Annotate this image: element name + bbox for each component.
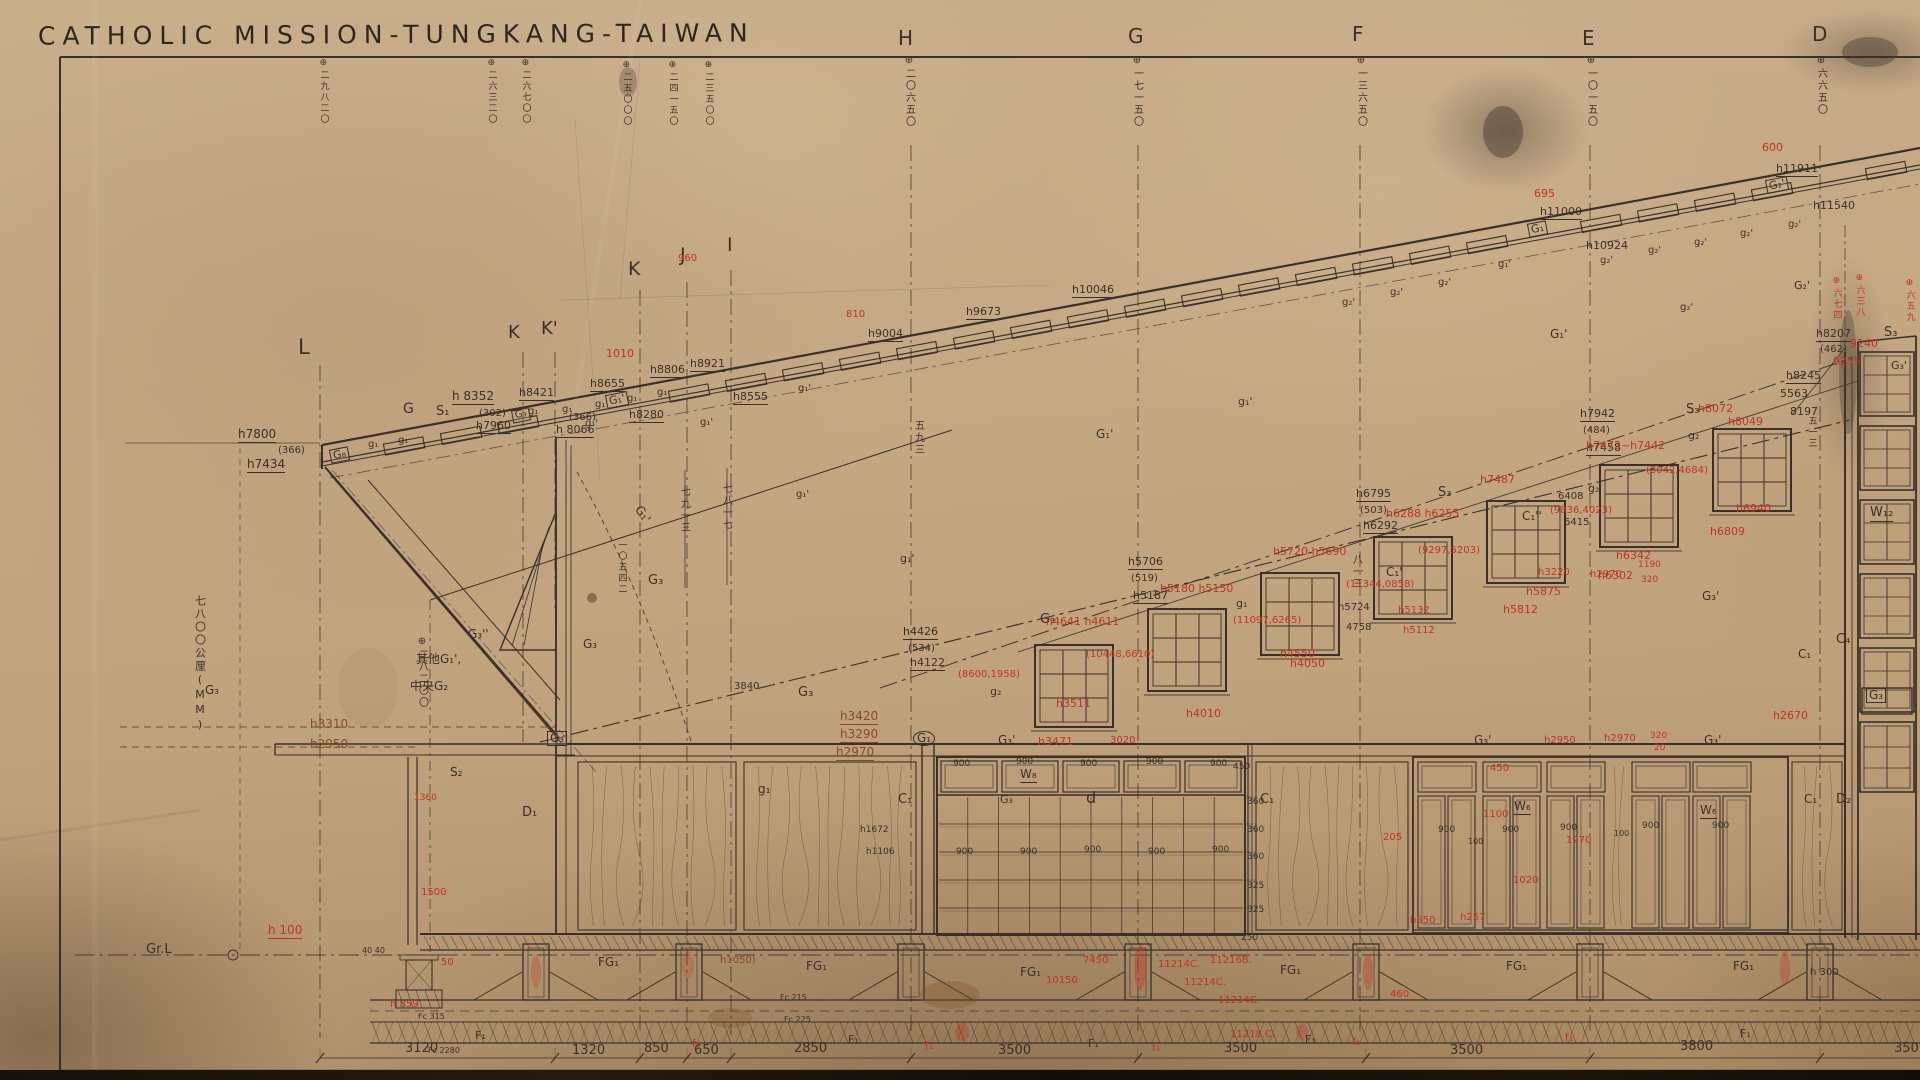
annotation-label: 9240 <box>1850 338 1878 350</box>
line-shape <box>1369 936 1376 949</box>
line-shape <box>627 972 675 1000</box>
annotation-label: FG₁ <box>1733 960 1754 973</box>
line-shape <box>1360 936 1367 949</box>
annotation-label: G₃' <box>1702 590 1719 603</box>
annotation-label: h3420 <box>840 710 878 725</box>
line-shape <box>973 936 980 949</box>
line-shape <box>322 169 1920 466</box>
annotation-label: 11214C. <box>1218 996 1260 1007</box>
line-shape <box>898 766 902 926</box>
line-shape <box>887 766 891 926</box>
annotation-label: G₃ <box>583 638 597 651</box>
line-shape <box>782 363 823 381</box>
annotation-label: G₃ <box>1866 688 1886 703</box>
line-shape <box>531 956 541 988</box>
annotation-label: 320 <box>1650 732 1667 741</box>
line-shape <box>1567 936 1574 949</box>
annotation-label: h5724 <box>1338 603 1370 614</box>
line-shape <box>524 543 543 645</box>
line-shape <box>849 972 897 1000</box>
annotation-label: 900 <box>1438 826 1455 835</box>
line-shape <box>1702 936 1709 949</box>
line-shape <box>782 766 790 926</box>
line-shape <box>1365 766 1368 926</box>
line-shape <box>433 936 440 949</box>
annotation-label: g₂' <box>1600 256 1613 267</box>
annotation-label: 4758 <box>1346 623 1371 634</box>
annotation-label: g₁ <box>657 388 667 399</box>
line-shape <box>953 331 994 349</box>
annotation-label: h8921 <box>690 358 725 372</box>
annotation-label: h 100 <box>268 924 302 939</box>
line-shape <box>919 936 926 949</box>
line-shape <box>514 936 521 949</box>
line-shape <box>1747 936 1754 949</box>
line-shape <box>442 936 449 949</box>
line-shape <box>676 936 683 949</box>
line-shape <box>1108 936 1115 949</box>
line-shape <box>1018 936 1025 949</box>
line-shape <box>1780 950 1790 986</box>
annotation-label: 205 <box>1383 833 1402 844</box>
line-shape <box>1792 762 1842 930</box>
line-shape <box>1802 766 1805 926</box>
line-shape <box>1261 936 1268 949</box>
line-shape <box>1128 765 1176 788</box>
line-shape <box>587 593 597 603</box>
annotation-label: g₂' <box>1694 238 1707 249</box>
annotation-label: ⊕二五〇〇〇 <box>621 60 630 127</box>
annotation-label: (534) <box>908 644 935 655</box>
line-shape <box>694 936 701 949</box>
annotation-label: G₁' <box>1096 428 1113 441</box>
line-shape <box>1666 936 1673 949</box>
line-shape <box>1090 936 1097 949</box>
annotation-label: h 859 <box>390 1000 419 1011</box>
line-shape <box>451 936 458 949</box>
annotation-label: ⊕一〇一五〇 <box>1585 55 1596 128</box>
annotation-label: C₁' <box>1386 566 1403 579</box>
line-shape <box>820 936 827 949</box>
line-shape <box>828 766 830 926</box>
line-shape <box>829 936 836 949</box>
line-shape <box>1909 936 1916 949</box>
annotation-label: 900 <box>1502 826 1519 835</box>
line-shape <box>793 936 800 949</box>
annotation-label: h257 <box>1460 913 1485 924</box>
line-shape <box>1297 936 1304 949</box>
annotation-label: h6288 h6255 <box>1386 508 1459 520</box>
line-shape <box>1325 766 1329 926</box>
annotation-label: 其他G₁', <box>416 653 461 666</box>
line-shape <box>1648 936 1655 949</box>
line-shape <box>1693 936 1700 949</box>
line-shape <box>1148 609 1226 691</box>
line-shape <box>1270 936 1277 949</box>
line-shape <box>1528 972 1576 1000</box>
line-shape <box>1081 936 1088 949</box>
annotation-label: 900 <box>1016 758 1033 767</box>
annotation-label: 一〇五四二 <box>616 540 625 595</box>
annotation-label: ⊕二九八二〇 <box>318 58 327 125</box>
annotation-label: 8197 <box>1790 406 1818 418</box>
line-shape <box>1040 650 1108 722</box>
line-shape <box>1468 936 1475 949</box>
annotation-label: h6795 <box>1356 488 1391 502</box>
table-edge-shadow <box>0 1070 1920 1080</box>
annotation-label: h7960 <box>476 420 511 434</box>
line-shape <box>505 936 512 949</box>
line-shape <box>839 352 880 370</box>
annotation-label: G₃ <box>205 684 219 697</box>
line-shape <box>1513 936 1520 949</box>
line-shape <box>1842 37 1898 67</box>
line-shape <box>1873 936 1880 949</box>
annotation-label: h3471 <box>1038 736 1073 748</box>
annotation-label: g₁ <box>595 400 605 411</box>
annotation-label: C₄ <box>1836 633 1850 647</box>
annotation-label: h7434 <box>247 458 285 473</box>
line-shape <box>633 766 644 926</box>
line-shape <box>1134 946 1146 990</box>
annotation-label: g₁ <box>1236 598 1247 610</box>
line-shape <box>590 766 593 926</box>
annotation-label: FG₁ <box>1020 966 1041 979</box>
annotation-label: G <box>1128 26 1144 47</box>
line-shape <box>616 766 624 926</box>
line-shape <box>460 936 467 949</box>
line-shape <box>871 766 881 926</box>
annotation-label: 460 <box>1390 990 1409 1001</box>
annotation-label: ⊕二八二〇〇 <box>416 636 427 709</box>
line-shape <box>1352 257 1393 275</box>
line-shape <box>1441 936 1448 949</box>
annotation-label: h8280 <box>629 409 664 423</box>
line-shape <box>559 936 566 949</box>
annotation-label: 6408 <box>1558 492 1583 503</box>
annotation-label: G₃ <box>547 731 567 746</box>
annotation-label: H <box>898 28 913 49</box>
annotation-label: 1020 <box>1513 876 1538 887</box>
line-shape <box>368 480 560 700</box>
annotation-label: G₃' <box>1474 734 1491 747</box>
line-shape <box>1522 936 1529 949</box>
annotation-label: 七八〇〇公厘(MM) <box>194 595 206 733</box>
annotation-label: 810 <box>846 310 865 321</box>
line-shape <box>602 766 607 926</box>
line-shape <box>1293 766 1301 926</box>
line-shape <box>1580 214 1621 232</box>
line-shape <box>1495 936 1502 949</box>
line-shape <box>1126 936 1133 949</box>
annotation-label: 325 <box>1247 882 1264 891</box>
line-shape <box>1144 936 1151 949</box>
annotation-label: 1010 <box>606 348 634 360</box>
line-shape <box>577 936 584 949</box>
line-shape <box>523 936 530 949</box>
line-shape <box>1675 936 1682 949</box>
annotation-label: h9004 <box>868 328 903 342</box>
line-shape <box>1238 278 1279 296</box>
line-shape <box>1216 936 1223 949</box>
annotation-label: h8806 <box>650 364 685 378</box>
drawing-linework <box>0 0 1920 1080</box>
annotation-label: h7942 <box>1580 408 1615 422</box>
annotation-label: E <box>1582 28 1595 49</box>
line-shape <box>1891 936 1898 949</box>
annotation-label: 七九一三 <box>678 486 689 534</box>
annotation-label: (484) <box>1583 426 1610 437</box>
annotation-label: F₁ <box>475 1030 486 1042</box>
line-shape <box>1387 936 1394 949</box>
line-shape <box>1828 936 1835 949</box>
line-shape <box>1394 766 1398 926</box>
annotation-label: 250 <box>1241 934 1258 943</box>
annotation-label: S₃ <box>1438 486 1451 500</box>
line-shape <box>1414 936 1421 949</box>
annotation-label: 450 <box>1490 764 1509 775</box>
annotation-label: 900 <box>1084 846 1101 855</box>
annotation-label: 五一三 <box>1806 416 1815 449</box>
line-shape <box>1054 936 1061 949</box>
line-shape <box>1306 936 1313 949</box>
line-shape <box>784 936 791 949</box>
line-shape <box>1268 766 1271 926</box>
annotation-label: G <box>403 402 414 417</box>
line-shape <box>703 936 710 949</box>
line-shape <box>1585 936 1592 949</box>
annotation-label: 360 <box>1247 826 1264 835</box>
line-shape <box>672 766 679 926</box>
annotation-label: 3500 <box>1224 1042 1257 1056</box>
annotation-label: 2850 <box>794 1042 827 1056</box>
annotation-label: h2950 <box>310 738 348 751</box>
annotation-label: h4122 <box>910 657 945 671</box>
line-shape <box>1423 936 1430 949</box>
line-shape <box>1551 800 1570 924</box>
annotation-label: 900 <box>1080 760 1097 769</box>
line-shape <box>1837 936 1844 949</box>
annotation-label: 50 <box>441 958 454 969</box>
line-shape <box>1422 766 1472 788</box>
annotation-label: g₁' <box>1238 396 1252 408</box>
line-shape <box>1466 236 1507 254</box>
line-shape <box>1711 936 1718 949</box>
annotation-label: f₁ <box>925 1040 933 1052</box>
annotation-label: h8049 <box>1728 416 1763 428</box>
line-shape <box>1612 766 1615 926</box>
line-shape <box>1765 936 1772 949</box>
annotation-label: 900 <box>1146 758 1163 767</box>
annotation-label: g₂ <box>990 686 1001 698</box>
line-shape <box>650 766 654 926</box>
line-shape <box>1882 936 1889 949</box>
annotation-label: h4426 <box>903 626 938 640</box>
annotation-label: g₁ <box>368 440 378 451</box>
annotation-label: h1106 <box>866 848 895 857</box>
annotation-label: g₂' <box>1342 298 1355 309</box>
line-shape <box>1181 289 1222 307</box>
line-shape <box>721 936 728 949</box>
annotation-label: FG₁ <box>1280 964 1301 977</box>
line-shape <box>1351 936 1358 949</box>
line-shape <box>874 936 881 949</box>
line-shape <box>532 936 539 949</box>
line-shape <box>1171 936 1178 949</box>
line-shape <box>802 936 809 949</box>
annotation-label: 中央G₂ <box>410 680 448 693</box>
line-shape <box>1261 573 1339 655</box>
blueprint-sheet: CATHOLIC MISSION-TUNGKANG-TAIWAN H⊕二〇六五〇… <box>0 0 1920 1080</box>
annotation-label: ⊕六六五〇 <box>1815 55 1826 116</box>
annotation-label: g₁' <box>585 419 598 430</box>
annotation-label: g₂' <box>1390 288 1403 299</box>
line-shape <box>1099 936 1106 949</box>
annotation-label: g₁ <box>758 783 770 796</box>
annotation-label: (366) <box>278 446 305 457</box>
annotation-label: g₁ <box>398 436 408 447</box>
annotation-label: h6940 <box>1736 503 1771 515</box>
line-shape <box>1027 936 1034 949</box>
line-shape <box>1774 936 1781 949</box>
line-shape <box>1636 766 1686 788</box>
line-shape <box>856 936 863 949</box>
annotation-label: h7800 <box>238 428 276 443</box>
annotation-label: G₃ <box>648 574 663 588</box>
annotation-label: Fc 215 <box>780 994 807 1002</box>
annotation-label: h5180 h5150 <box>1160 583 1233 595</box>
line-shape <box>757 936 764 949</box>
line-shape <box>586 936 593 949</box>
annotation-label: D <box>1812 24 1827 45</box>
annotation-label: f₁ <box>1352 1036 1360 1048</box>
annotation-label: h1672 <box>860 826 889 835</box>
line-shape <box>865 936 872 949</box>
annotation-label: 900 <box>1212 846 1229 855</box>
annotation-label: Fc 315 <box>418 1013 445 1021</box>
annotation-label: h4010 <box>1186 708 1221 720</box>
annotation-label: h2670 <box>1773 710 1808 722</box>
annotation-label: ⊕二六七〇〇 <box>520 58 529 125</box>
line-shape <box>496 936 503 949</box>
annotation-label: h3290 <box>840 728 878 743</box>
line-shape <box>1632 762 1690 792</box>
line-shape <box>550 972 598 1000</box>
annotation-label: h9673 <box>966 306 1001 320</box>
line-shape <box>1396 936 1403 949</box>
line-shape <box>1153 936 1160 949</box>
annotation-label: 450 <box>1233 763 1250 772</box>
annotation-label: Fc 225 <box>784 1016 811 1024</box>
line-shape <box>1825 766 1833 926</box>
line-shape <box>1279 936 1286 949</box>
line-shape <box>1666 800 1685 924</box>
line-shape <box>1621 936 1628 949</box>
annotation-label: 900 <box>1020 848 1037 857</box>
annotation-label: (302) <box>479 409 506 420</box>
line-shape <box>920 981 980 1009</box>
annotation-label: F <box>1352 24 1364 45</box>
line-shape <box>955 1023 969 1041</box>
annotation-label: 320 <box>1641 576 1658 585</box>
line-shape <box>322 165 1920 462</box>
line-shape <box>847 936 854 949</box>
annotation-label: 1360 <box>414 794 437 803</box>
annotation-label: g₂' <box>1648 246 1661 257</box>
line-shape <box>708 1008 752 1028</box>
annotation-label: 325 <box>1247 906 1264 915</box>
line-shape <box>1558 936 1565 949</box>
annotation-label: 100 <box>1614 830 1629 838</box>
line-shape <box>1295 267 1336 285</box>
annotation-label: W₁₂ <box>1870 506 1893 522</box>
annotation-label: 6415 <box>1564 518 1589 529</box>
line-shape <box>1378 766 1388 926</box>
annotation-label: 360 <box>1247 853 1264 862</box>
line-shape <box>474 972 522 1000</box>
annotation-label: h8555 <box>733 391 768 405</box>
line-shape <box>662 766 664 926</box>
annotation-label: G₃' <box>998 734 1015 747</box>
line-shape <box>668 384 709 402</box>
annotation-label: W₆ <box>1700 804 1717 819</box>
line-shape <box>1072 936 1079 949</box>
annotation-label: 11214C. <box>1158 960 1200 971</box>
line-shape <box>1551 766 1601 788</box>
line-shape <box>946 936 953 949</box>
annotation-label: h2950 <box>1544 736 1576 747</box>
annotation-label: h7487 <box>1480 474 1515 486</box>
annotation-label: h2970 <box>1590 570 1622 581</box>
annotation-label: h5112 <box>1403 626 1435 637</box>
annotation-label: G₃ <box>798 686 813 700</box>
line-shape <box>1010 320 1051 338</box>
line-shape <box>1418 762 1476 792</box>
annotation-label: C₁ <box>1804 793 1817 806</box>
annotation-label: h5875 <box>1526 586 1561 598</box>
line-shape <box>430 430 952 600</box>
annotation-label: 11216B. <box>1210 956 1252 967</box>
annotation-label: S₂ <box>450 766 462 779</box>
line-shape <box>982 936 989 949</box>
annotation-label: S₁ <box>436 405 449 419</box>
annotation-label: D₁ <box>522 806 537 820</box>
annotation-label: h5132 <box>1398 606 1430 617</box>
line-shape <box>1504 936 1511 949</box>
line-shape <box>722 766 726 926</box>
line-shape <box>425 990 431 1008</box>
line-shape <box>838 936 845 949</box>
line-shape <box>896 342 937 360</box>
annotation-label: K <box>508 324 520 343</box>
line-shape <box>1477 936 1484 949</box>
line-shape <box>838 766 845 926</box>
line-shape <box>1531 936 1538 949</box>
line-shape <box>0 810 200 840</box>
annotation-label: 7450 <box>1083 956 1108 967</box>
line-shape <box>705 766 715 926</box>
line-shape <box>1324 936 1331 949</box>
line-shape <box>1713 429 1791 511</box>
line-shape <box>595 936 602 949</box>
line-shape <box>1603 936 1610 949</box>
annotation-label: g₂' <box>1680 303 1693 314</box>
line-shape <box>1684 936 1691 949</box>
line-shape <box>1720 936 1727 949</box>
line-shape <box>1727 800 1746 924</box>
annotation-label: h 8352 <box>452 390 494 405</box>
line-shape <box>748 936 755 949</box>
